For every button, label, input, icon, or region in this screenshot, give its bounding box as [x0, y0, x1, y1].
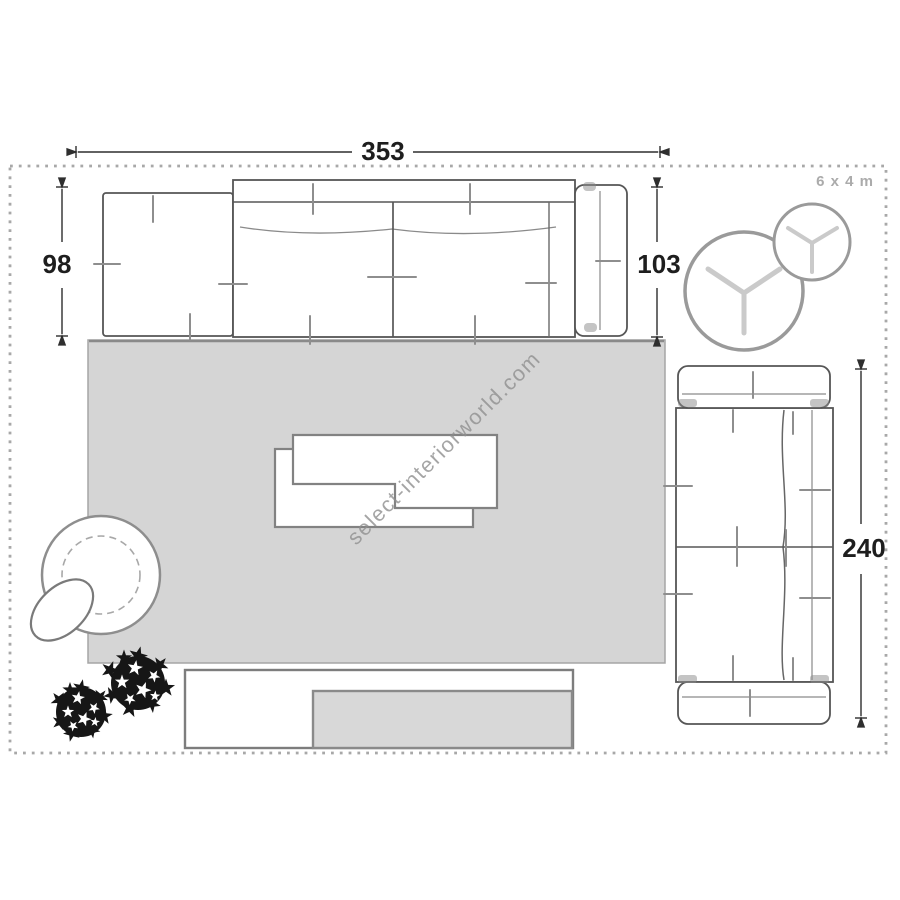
furniture-floor-plan: 6 x 4 m 353 98 103 240 select-interiorwo… [0, 0, 900, 900]
sofa2-body [676, 408, 833, 682]
tv [313, 691, 572, 748]
floor-plan-drawing: 6 x 4 m 353 98 103 240 select-interiorwo… [0, 0, 900, 900]
dimension-value: 103 [637, 249, 680, 279]
sofa-body [233, 180, 575, 337]
two-seat-sofa [664, 366, 833, 724]
room-size-label: 6 x 4 m [816, 173, 874, 190]
dimension-second-sofa-length: 240 [842, 369, 885, 718]
sofa2-armrest-bottom [678, 682, 830, 724]
sofa-open-end [103, 193, 233, 336]
dimension-value: 98 [43, 249, 72, 279]
plant-small [48, 677, 113, 744]
side-table-small [774, 204, 850, 280]
dimension-open-end-depth: 98 [43, 187, 72, 336]
dimension-value: 353 [361, 136, 404, 166]
sectional-sofa [94, 180, 627, 344]
dimension-sofa-depth: 103 [637, 187, 680, 337]
dimension-value: 240 [842, 533, 885, 563]
dimension-sofa-width: 353 [76, 136, 660, 166]
tv-sideboard [185, 670, 573, 748]
